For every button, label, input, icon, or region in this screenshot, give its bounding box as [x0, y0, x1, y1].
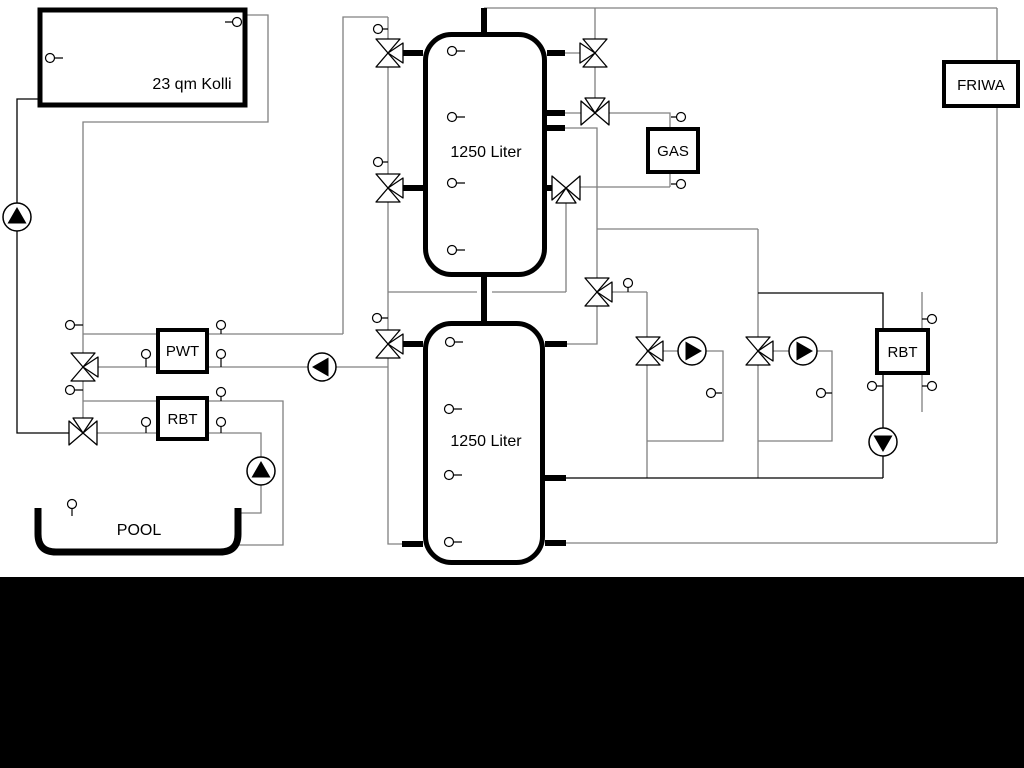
- three-way-valve-icon: [376, 39, 403, 67]
- pump-icon: [247, 457, 275, 485]
- sensor-icon: [66, 386, 75, 395]
- sensor-icon: [217, 418, 226, 427]
- sensor-icon: [928, 382, 937, 391]
- sensor-icon: [624, 279, 633, 288]
- three-way-valve-icon: [636, 337, 663, 365]
- tank1-label: 1250 Liter: [450, 144, 522, 161]
- pool-basin: POOL: [38, 508, 238, 552]
- pump-icon: [678, 337, 706, 365]
- sensor-icon: [373, 314, 382, 323]
- three-way-valve-icon: [746, 337, 773, 365]
- friwa-label: FRIWA: [957, 77, 1005, 94]
- gas-label: GAS: [657, 143, 689, 160]
- sensor-icon: [707, 389, 716, 398]
- pool-label: POOL: [117, 522, 162, 539]
- three-way-valve-icon: [581, 98, 609, 125]
- sensor-icon: [445, 471, 454, 480]
- three-way-valve-icon: [376, 174, 403, 202]
- sensor-icon: [817, 389, 826, 398]
- pump-icon: [308, 353, 336, 381]
- tank2-label: 1250 Liter: [450, 433, 522, 450]
- pump-icon: [869, 428, 897, 456]
- rbt-heating-label: RBT: [888, 344, 918, 361]
- sensor-icon: [217, 388, 226, 397]
- buffer-tank-1: 1250 Liter: [426, 35, 545, 275]
- pwt-label: PWT: [166, 343, 199, 360]
- sensor-icon: [448, 113, 457, 122]
- three-way-valve-icon: [585, 278, 612, 306]
- sensor-icon: [445, 405, 454, 414]
- sensor-icon: [46, 54, 55, 63]
- three-way-valve-icon: [580, 39, 607, 67]
- rbt-pool-unit: RBT: [158, 398, 207, 439]
- friwa-station: FRIWA: [944, 62, 1018, 106]
- sensor-icon: [446, 338, 455, 347]
- sensor-icon: [448, 47, 457, 56]
- rbt-heating-unit: RBT: [877, 330, 928, 373]
- three-way-valve-icon: [69, 418, 97, 445]
- schematic-page: 1250 Liter 1250 Liter POOL 23 qm Kolli P…: [0, 0, 1024, 768]
- pwt-heat-exchanger: PWT: [158, 330, 207, 372]
- three-way-valve-icon: [71, 353, 98, 381]
- sensor-icon: [374, 158, 383, 167]
- collector-label: 23 qm Kolli: [152, 76, 231, 93]
- sensor-icon: [868, 382, 877, 391]
- sensor-icon: [448, 246, 457, 255]
- rbt-pool-label: RBT: [168, 411, 198, 428]
- gas-boiler: GAS: [648, 129, 698, 172]
- three-way-valve-icon: [376, 330, 403, 358]
- three-way-valve-icon: [552, 176, 580, 203]
- sensor-icon: [142, 418, 151, 427]
- sensor-icon: [677, 113, 686, 122]
- sensor-icon: [677, 180, 686, 189]
- sensor-icon: [142, 350, 151, 359]
- sensor-icon: [448, 179, 457, 188]
- pump-icon: [3, 203, 31, 231]
- sensor-icon: [217, 350, 226, 359]
- sensor-icon: [445, 538, 454, 547]
- sensor-icon: [217, 321, 226, 330]
- sensor-icon: [928, 315, 937, 324]
- sensor-icon: [233, 18, 242, 27]
- footer-bar: [0, 577, 1024, 768]
- sensor-icon: [66, 321, 75, 330]
- sensor-icon: [68, 500, 77, 509]
- hydraulic-schematic: 1250 Liter 1250 Liter POOL 23 qm Kolli P…: [0, 0, 1024, 768]
- pump-icon: [789, 337, 817, 365]
- solar-collector: 23 qm Kolli: [40, 10, 245, 105]
- sensor-icon: [374, 25, 383, 34]
- buffer-tank-2: 1250 Liter: [426, 324, 543, 563]
